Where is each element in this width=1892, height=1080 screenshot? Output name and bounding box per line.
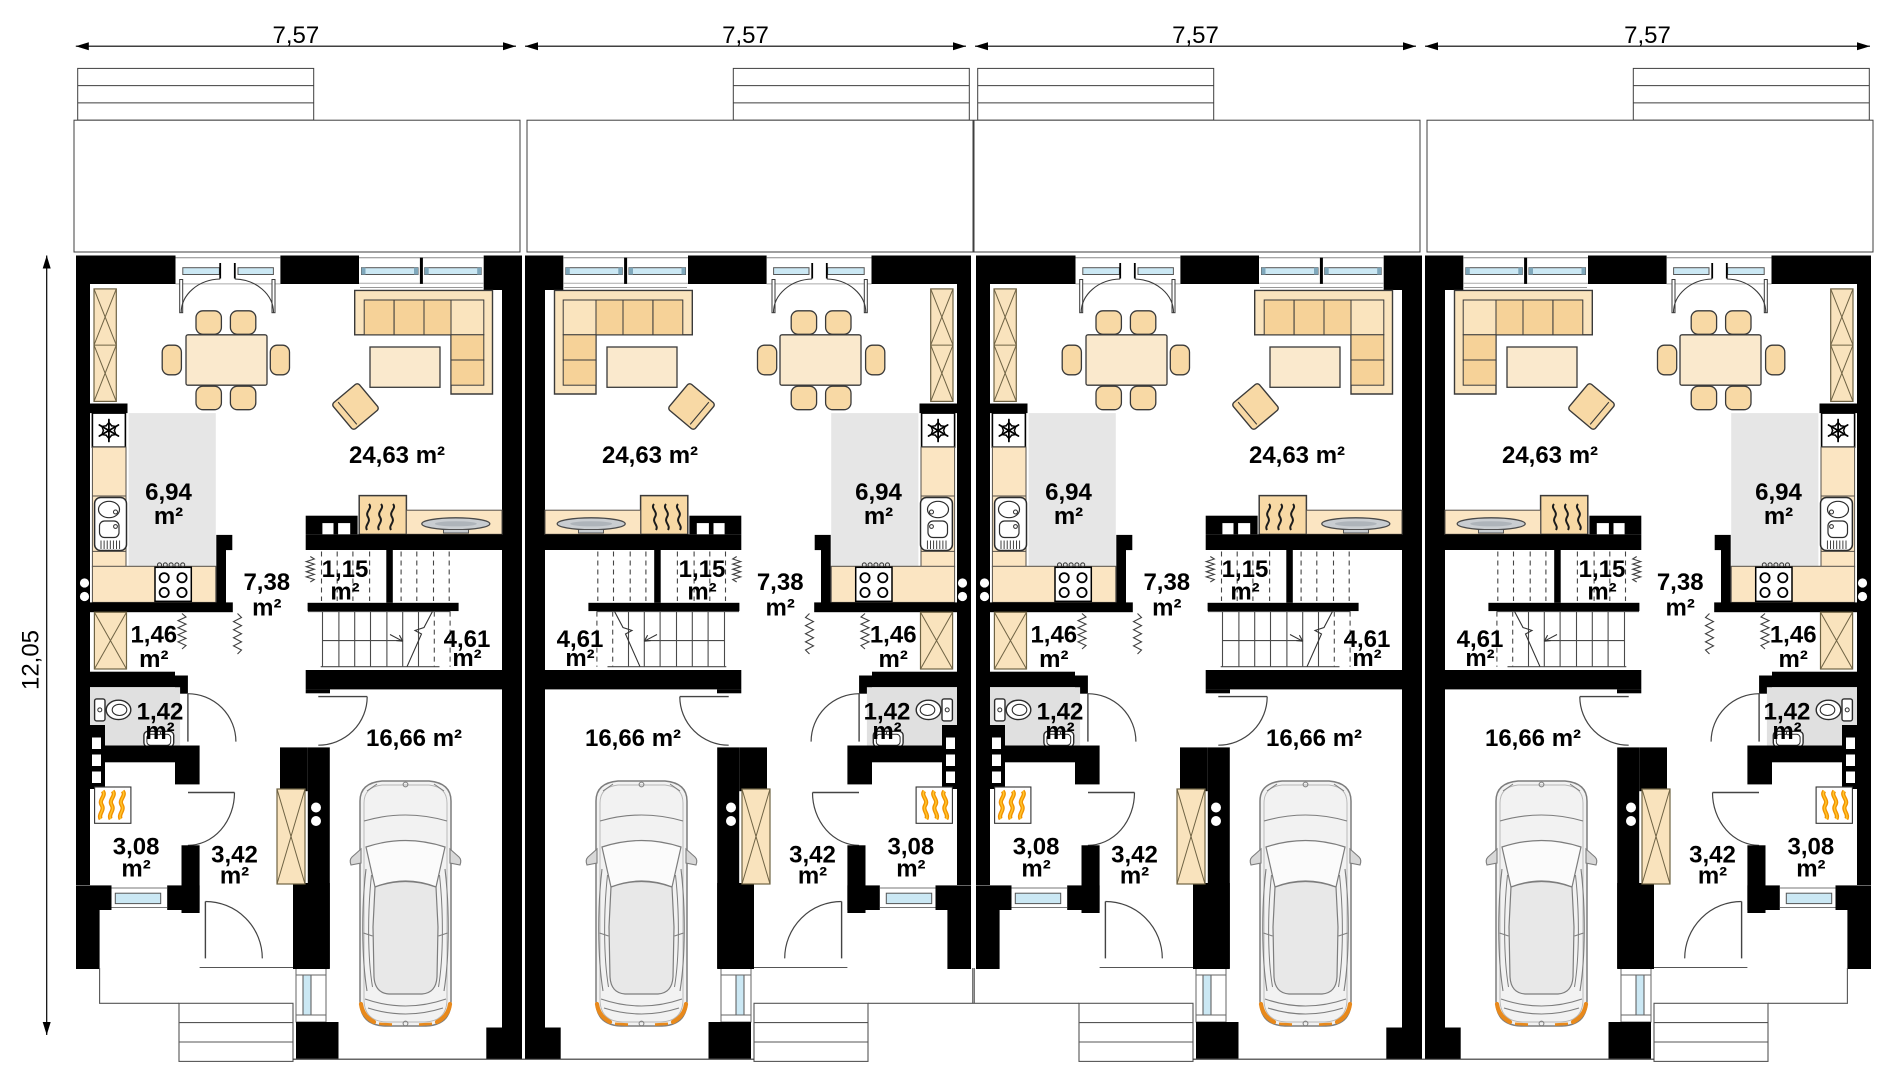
svg-text:m²: m²	[330, 579, 359, 606]
svg-text:m²: m²	[1698, 863, 1727, 890]
svg-text:1,46: 1,46	[1030, 622, 1077, 649]
svg-text:24,63 m²: 24,63 m²	[1502, 442, 1598, 469]
svg-text:m²: m²	[896, 856, 925, 883]
svg-text:6,94: 6,94	[145, 479, 192, 506]
svg-text:16,66 m²: 16,66 m²	[1266, 725, 1362, 752]
svg-text:1,46: 1,46	[1770, 622, 1817, 649]
svg-text:m²: m²	[1772, 718, 1801, 745]
svg-text:m²: m²	[121, 856, 150, 883]
svg-text:m²: m²	[766, 595, 795, 622]
svg-text:7,38: 7,38	[1143, 569, 1190, 596]
svg-text:12,05: 12,05	[18, 630, 45, 690]
svg-text:m²: m²	[1021, 856, 1050, 883]
svg-text:m²: m²	[1764, 503, 1793, 530]
svg-text:m²: m²	[798, 863, 827, 890]
svg-text:7,57: 7,57	[722, 22, 769, 49]
svg-text:m²: m²	[1045, 718, 1074, 745]
svg-text:6,94: 6,94	[855, 479, 902, 506]
svg-text:m²: m²	[1230, 579, 1259, 606]
svg-text:7,57: 7,57	[273, 22, 320, 49]
svg-text:m²: m²	[1666, 595, 1695, 622]
svg-text:m²: m²	[139, 646, 168, 673]
svg-text:7,38: 7,38	[757, 569, 804, 596]
svg-text:m²: m²	[879, 646, 908, 673]
svg-text:m²: m²	[1039, 646, 1068, 673]
svg-text:m²: m²	[1054, 503, 1083, 530]
svg-text:7,57: 7,57	[1624, 22, 1671, 49]
svg-text:16,66 m²: 16,66 m²	[366, 725, 462, 752]
svg-text:7,38: 7,38	[1657, 569, 1704, 596]
svg-text:m²: m²	[154, 503, 183, 530]
svg-text:24,63 m²: 24,63 m²	[349, 442, 445, 469]
svg-text:1,46: 1,46	[130, 622, 177, 649]
svg-text:m²: m²	[1587, 579, 1616, 606]
svg-text:m²: m²	[1120, 863, 1149, 890]
svg-text:7,38: 7,38	[243, 569, 290, 596]
svg-text:1,46: 1,46	[870, 622, 917, 649]
svg-text:m²: m²	[1352, 645, 1381, 672]
svg-text:m²: m²	[1152, 595, 1181, 622]
svg-text:m²: m²	[452, 645, 481, 672]
svg-text:m²: m²	[1779, 646, 1808, 673]
svg-text:m²: m²	[687, 579, 716, 606]
svg-text:m²: m²	[565, 645, 594, 672]
svg-text:6,94: 6,94	[1755, 479, 1802, 506]
svg-text:24,63 m²: 24,63 m²	[1249, 442, 1345, 469]
svg-text:7,57: 7,57	[1172, 22, 1219, 49]
svg-text:m²: m²	[145, 718, 174, 745]
svg-text:6,94: 6,94	[1045, 479, 1092, 506]
svg-text:m²: m²	[252, 595, 281, 622]
svg-text:m²: m²	[220, 863, 249, 890]
svg-text:16,66 m²: 16,66 m²	[585, 725, 681, 752]
svg-text:m²: m²	[1796, 856, 1825, 883]
svg-text:24,63 m²: 24,63 m²	[602, 442, 698, 469]
svg-text:m²: m²	[1465, 645, 1494, 672]
svg-text:m²: m²	[872, 718, 901, 745]
svg-text:m²: m²	[864, 503, 893, 530]
svg-text:16,66 m²: 16,66 m²	[1485, 725, 1581, 752]
